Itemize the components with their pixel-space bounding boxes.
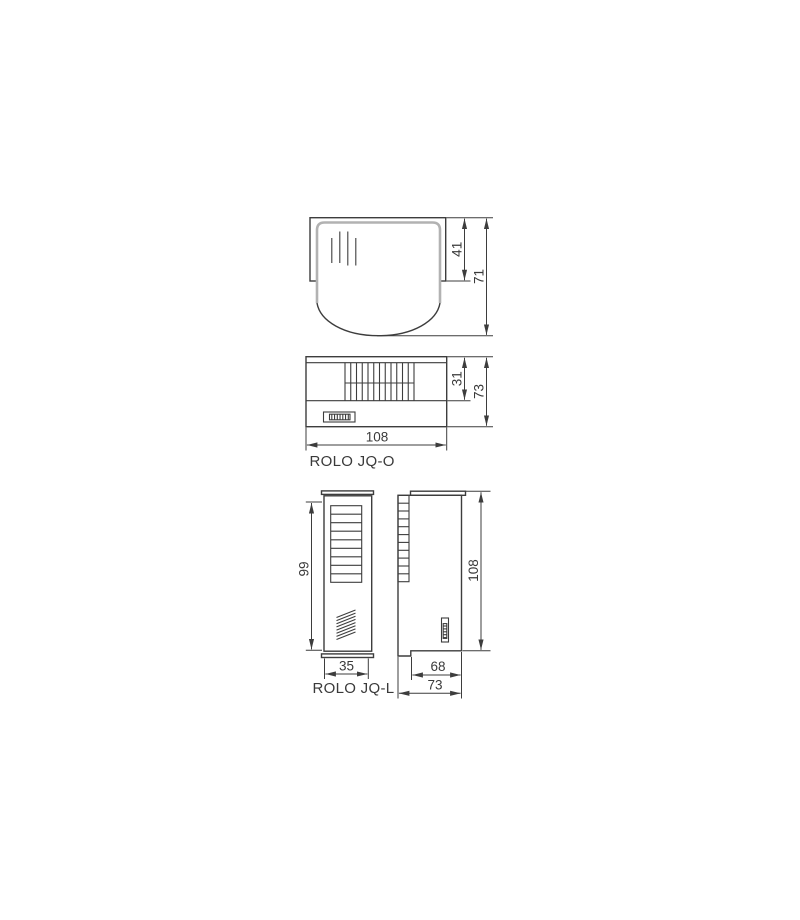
dim-label-73-depth: 73 (427, 678, 442, 693)
dim-label-108-width: 108 (366, 430, 389, 445)
jql-side-view: 108 68 73 (398, 491, 491, 698)
jql-bottom-cap (322, 654, 374, 658)
jql-view-label: ROLO JQ-L (313, 680, 395, 697)
jqo-top-view: 41 71 (310, 218, 493, 336)
jqo-front-view: 31 73 108 ROLO JQ-O (306, 357, 493, 470)
dim-label-31: 31 (450, 371, 465, 386)
dim-label-99: 99 (296, 561, 311, 576)
dim-label-68: 68 (430, 659, 445, 674)
jql-top-cap (322, 491, 374, 495)
dim-label-35: 35 (339, 658, 354, 673)
jqo-cover-face (317, 223, 440, 336)
dim-label-73: 73 (471, 384, 486, 399)
catalog-drawing-page: 41 71 (0, 0, 800, 920)
dim-label-41: 41 (450, 242, 465, 257)
jql-front-view: 99 35 ROLO JQ-L (296, 491, 394, 697)
dim-label-108-height: 108 (466, 559, 481, 582)
jqo-body (306, 357, 447, 427)
jqo-view-label: ROLO JQ-O (310, 453, 395, 470)
dim-label-71: 71 (471, 269, 486, 284)
technical-drawing: 41 71 (0, 0, 800, 920)
